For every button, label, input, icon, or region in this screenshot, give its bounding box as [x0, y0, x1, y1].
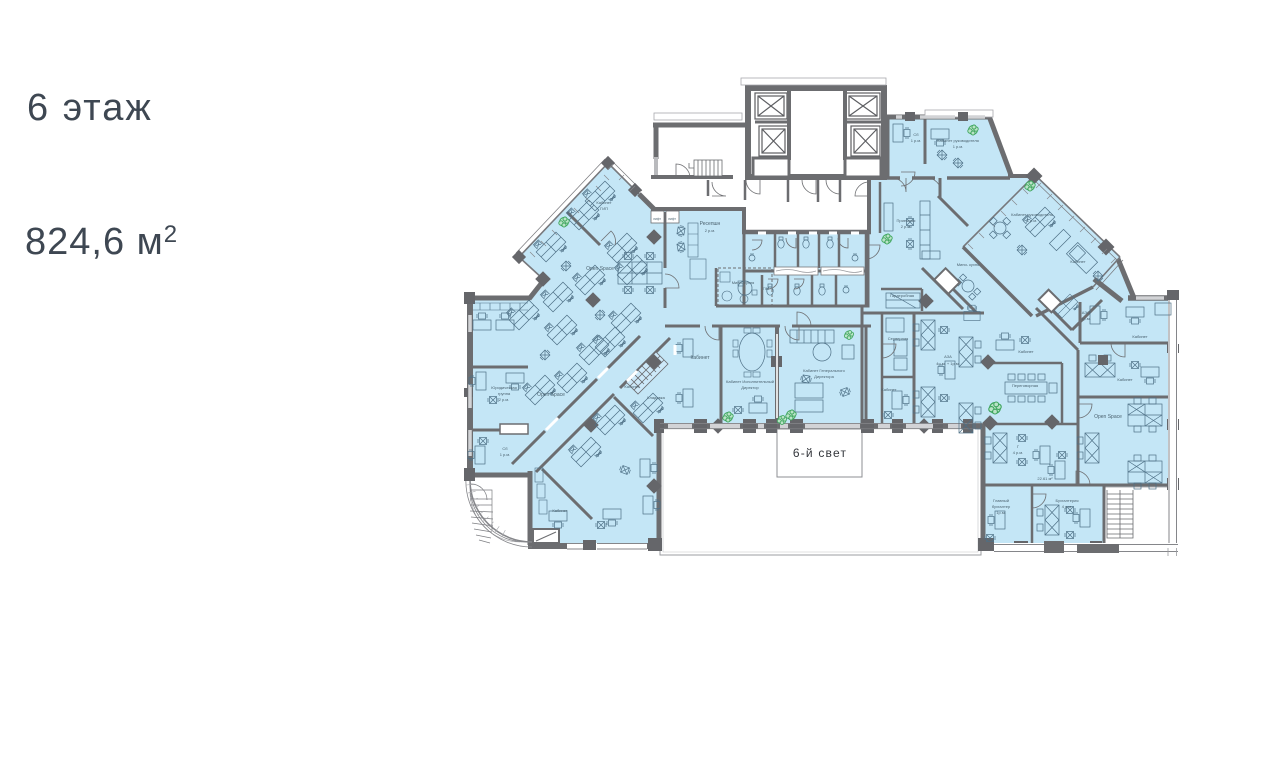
- svg-text:Кабинет Генерального: Кабинет Генерального: [803, 368, 846, 373]
- svg-text:Серверная: Серверная: [888, 336, 908, 341]
- svg-text:1 р.м.: 1 р.м.: [500, 452, 511, 457]
- svg-text:Сб: Сб: [913, 132, 919, 137]
- svg-text:Open Space: Open Space: [586, 266, 614, 272]
- svg-text:Кабинет: Кабинет: [1070, 259, 1085, 264]
- svg-text:Кабинет: Кабинет: [690, 355, 710, 361]
- svg-text:6-й свет: 6-й свет: [793, 446, 847, 460]
- svg-text:22.61 м²: 22.61 м²: [1037, 476, 1053, 481]
- svg-text:4 р.м.: 4 р.м.: [1062, 504, 1073, 509]
- svg-text:Кабинет: Кабинет: [1117, 377, 1132, 382]
- svg-text:1 р.м.: 1 р.м.: [1027, 218, 1038, 223]
- svg-text:Кабинет: Кабинет: [596, 200, 611, 205]
- svg-text:бухгалтер: бухгалтер: [992, 504, 1011, 509]
- svg-text:4р.м. + 1р.м.: 4р.м. + 1р.м.: [936, 361, 959, 366]
- svg-text:1р.м.: 1р.м.: [996, 510, 1005, 515]
- svg-text:824,6 м2: 824,6 м2: [25, 221, 178, 263]
- svg-text:АЭО: АЭО: [1082, 310, 1091, 315]
- svg-text:ГИП: ГИП: [600, 206, 608, 211]
- svg-text:Open Space: Open Space: [1094, 414, 1122, 420]
- svg-text:Кабинет руководителя: Кабинет руководителя: [1011, 212, 1053, 217]
- svg-text:Главный: Главный: [993, 498, 1009, 503]
- svg-text:6 этаж: 6 этаж: [27, 87, 153, 129]
- svg-text:1 р.м.: 1 р.м.: [953, 144, 964, 149]
- svg-text:Мини- кухня: Мини- кухня: [957, 262, 980, 267]
- svg-text:Юридическая: Юридическая: [491, 385, 517, 390]
- svg-text:4 р.м.: 4 р.м.: [1013, 450, 1024, 455]
- svg-text:Директора: Директора: [814, 374, 834, 379]
- svg-text:Кабинет руководителя: Кабинет руководителя: [937, 138, 979, 143]
- svg-text:2 р.м.: 2 р.м.: [705, 228, 716, 233]
- svg-text:Директор: Директор: [741, 385, 759, 390]
- svg-text:Бухгалтерия: Бухгалтерия: [1055, 498, 1078, 503]
- svg-text:Кабинет: Кабинет: [1018, 349, 1033, 354]
- svg-text:Ресепшн: Ресепшн: [700, 221, 721, 227]
- svg-text:Гардеробная: Гардеробная: [890, 293, 914, 298]
- svg-text:лифт: лифт: [668, 217, 676, 221]
- svg-text:2 р.м.: 2 р.м.: [901, 224, 912, 229]
- svg-text:Переговорная: Переговорная: [1012, 383, 1038, 388]
- svg-text:2 р.м.: 2 р.м.: [499, 397, 510, 402]
- svg-text:Кабинет: Кабинет: [1132, 334, 1147, 339]
- svg-text:ПМ: ПМ: [763, 286, 769, 291]
- svg-text:лифт: лифт: [653, 217, 661, 221]
- svg-text:1р.м.: 1р.м.: [1081, 316, 1090, 321]
- svg-text:Кабинет: Кабинет: [624, 384, 639, 389]
- svg-text:Кладовка: Кладовка: [647, 395, 665, 400]
- svg-text:Сб: Сб: [502, 446, 508, 451]
- svg-text:Кабинет: Кабинет: [881, 387, 896, 392]
- svg-text:Кабинет Исполнительный: Кабинет Исполнительный: [726, 379, 774, 384]
- svg-text:Кабинет: Кабинет: [552, 508, 567, 513]
- svg-text:1 р.м.: 1 р.м.: [911, 138, 922, 143]
- svg-text:Мини- кухня: Мини- кухня: [732, 280, 755, 285]
- svg-text:АЗА: АЗА: [944, 354, 952, 359]
- svg-text:группа: группа: [498, 391, 511, 396]
- svg-text:Приемная: Приемная: [897, 218, 916, 223]
- svg-text:Open Space: Open Space: [537, 392, 565, 398]
